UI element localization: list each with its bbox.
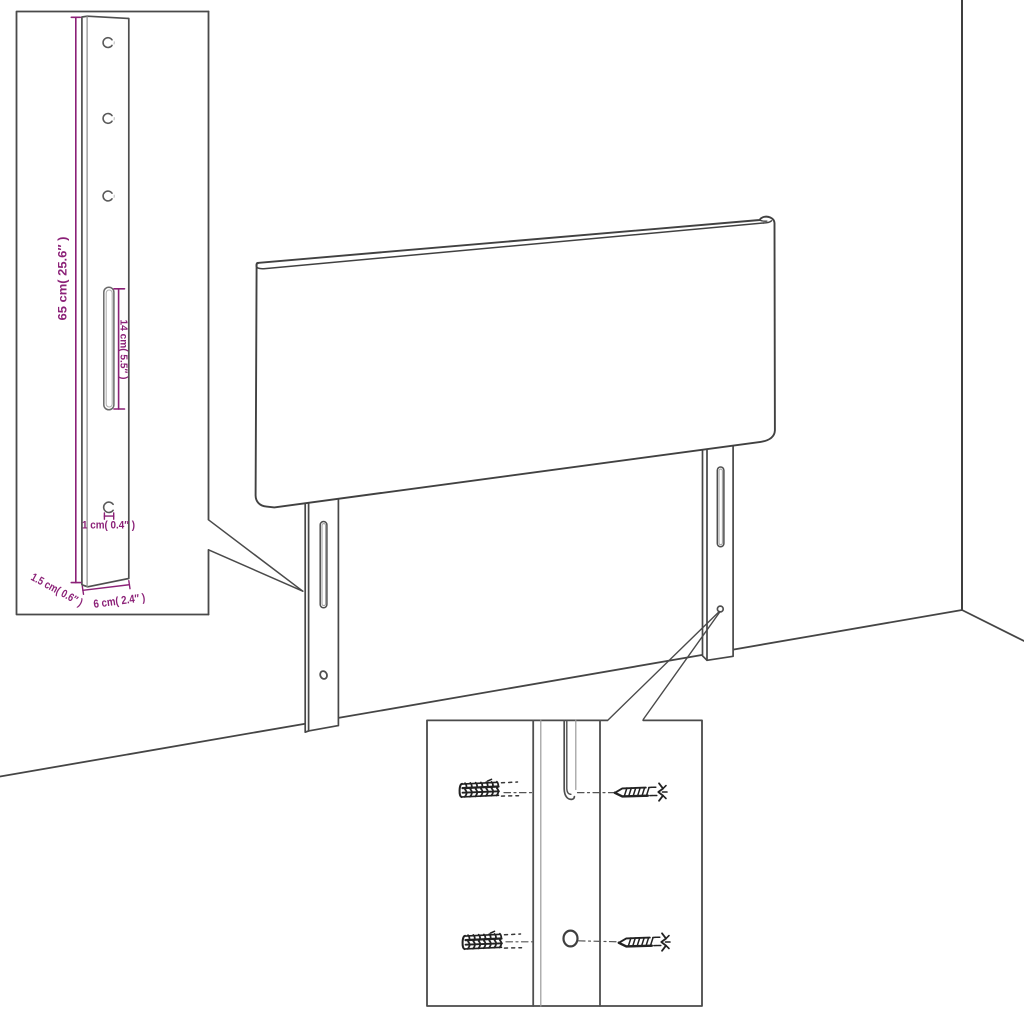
svg-text:1 cm( 0.4″ ): 1 cm( 0.4″ ) [82, 520, 135, 532]
svg-text:65 cm( 25.6″ ): 65 cm( 25.6″ ) [55, 237, 69, 321]
svg-text:14 cm( 5.5″ ): 14 cm( 5.5″ ) [118, 320, 129, 380]
